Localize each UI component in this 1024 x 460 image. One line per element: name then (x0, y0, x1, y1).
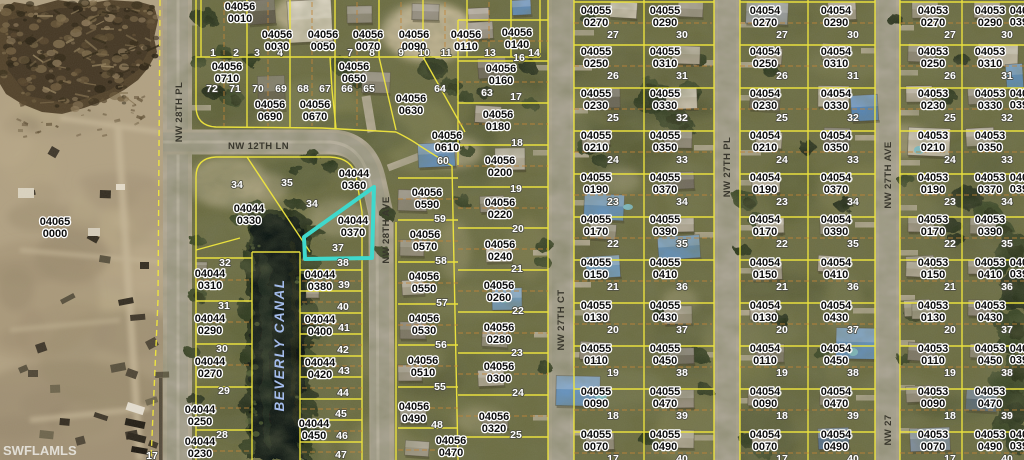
svg-text:0250: 0250 (584, 58, 608, 70)
svg-text:0290: 0290 (824, 17, 848, 29)
svg-text:04054: 04054 (750, 5, 781, 17)
svg-text:0450: 0450 (824, 355, 848, 367)
svg-text:0400: 0400 (308, 326, 332, 338)
svg-text:23: 23 (776, 196, 788, 208)
svg-text:0110: 0110 (454, 41, 478, 53)
svg-text:04055: 04055 (650, 214, 681, 226)
svg-text:66: 66 (341, 83, 353, 95)
svg-text:0010: 0010 (228, 13, 252, 25)
svg-text:04055: 04055 (581, 343, 612, 355)
svg-text:64: 64 (434, 83, 446, 95)
svg-text:04056: 04056 (485, 197, 516, 209)
svg-text:0490: 0490 (978, 441, 1002, 453)
svg-text:43: 43 (338, 365, 350, 377)
svg-text:0160: 0160 (489, 75, 513, 87)
svg-text:33: 33 (676, 154, 688, 166)
svg-text:3: 3 (254, 47, 260, 59)
svg-text:0530: 0530 (412, 325, 436, 337)
svg-text:04055: 04055 (581, 300, 612, 312)
svg-text:04044: 04044 (305, 357, 336, 369)
svg-text:04053: 04053 (975, 300, 1006, 312)
svg-text:34: 34 (847, 196, 859, 208)
svg-text:04053: 04053 (975, 5, 1006, 17)
svg-text:0270: 0270 (921, 17, 945, 29)
svg-text:0410: 0410 (978, 269, 1002, 281)
svg-text:0350: 0350 (978, 142, 1002, 154)
svg-text:34: 34 (676, 196, 688, 208)
svg-text:39: 39 (676, 410, 688, 422)
svg-text:04056: 04056 (485, 239, 516, 251)
svg-text:0450: 0450 (302, 430, 326, 442)
svg-text:0290: 0290 (978, 17, 1002, 29)
svg-text:31: 31 (218, 300, 230, 312)
svg-text:30: 30 (1001, 29, 1013, 41)
svg-text:NW 27: NW 27 (883, 414, 894, 445)
svg-text:04053: 04053 (975, 130, 1006, 142)
svg-text:NW 28TH AVE: NW 28TH AVE (381, 196, 392, 263)
svg-text:40: 40 (337, 301, 349, 313)
svg-text:14: 14 (528, 47, 540, 59)
svg-text:04055: 04055 (650, 386, 681, 398)
svg-text:0405: 0405 (1010, 343, 1024, 355)
svg-text:0570: 0570 (413, 241, 437, 253)
svg-text:0590: 0590 (415, 199, 439, 211)
svg-text:21: 21 (607, 281, 619, 293)
svg-text:04044: 04044 (339, 168, 370, 180)
svg-text:0610: 0610 (435, 142, 459, 154)
svg-text:0390: 0390 (653, 226, 677, 238)
svg-text:0210: 0210 (584, 142, 608, 154)
svg-text:26: 26 (944, 70, 956, 82)
svg-text:32: 32 (847, 112, 859, 124)
svg-text:38: 38 (847, 367, 859, 379)
svg-text:04053: 04053 (975, 386, 1006, 398)
svg-text:17: 17 (146, 450, 158, 460)
svg-text:0090: 0090 (921, 398, 945, 410)
svg-text:56: 56 (435, 339, 447, 351)
svg-text:10: 10 (418, 47, 430, 59)
svg-text:0330: 0330 (824, 100, 848, 112)
svg-text:04053: 04053 (918, 46, 949, 58)
svg-text:21: 21 (776, 281, 788, 293)
svg-text:04054: 04054 (821, 429, 852, 441)
svg-text:04056: 04056 (353, 29, 384, 41)
svg-text:0090: 0090 (584, 398, 608, 410)
svg-text:25: 25 (944, 112, 956, 124)
svg-text:0250: 0250 (753, 58, 777, 70)
svg-text:38: 38 (676, 367, 688, 379)
svg-text:04056: 04056 (399, 401, 430, 413)
svg-text:NW 27TH PL: NW 27TH PL (722, 137, 733, 197)
svg-text:04055: 04055 (581, 130, 612, 142)
svg-text:04053: 04053 (918, 300, 949, 312)
svg-text:30: 30 (847, 29, 859, 41)
svg-text:04054: 04054 (821, 88, 852, 100)
svg-text:0190: 0190 (921, 184, 945, 196)
svg-text:04054: 04054 (821, 343, 852, 355)
svg-text:04055: 04055 (650, 46, 681, 58)
svg-text:40: 40 (847, 453, 859, 460)
svg-text:0320: 0320 (482, 423, 506, 435)
svg-text:0230: 0230 (753, 100, 777, 112)
svg-text:04056: 04056 (432, 130, 463, 142)
svg-text:0390: 0390 (824, 226, 848, 238)
svg-text:34: 34 (231, 179, 243, 191)
svg-text:22: 22 (944, 238, 956, 250)
svg-text:SWFLAMLS: SWFLAMLS (3, 443, 77, 458)
svg-text:8: 8 (369, 47, 375, 59)
svg-text:22: 22 (607, 238, 619, 250)
svg-text:04056: 04056 (409, 271, 440, 283)
svg-text:NW 12TH LN: NW 12TH LN (228, 141, 289, 152)
svg-text:0290: 0290 (653, 17, 677, 29)
svg-text:0690: 0690 (258, 111, 282, 123)
svg-text:0250: 0250 (188, 416, 212, 428)
svg-text:46: 46 (336, 430, 348, 442)
svg-text:36: 36 (1001, 281, 1013, 293)
svg-text:04054: 04054 (750, 429, 781, 441)
svg-text:0430: 0430 (824, 312, 848, 324)
svg-text:36: 36 (847, 281, 859, 293)
svg-text:0470: 0470 (824, 398, 848, 410)
svg-text:04044: 04044 (185, 436, 216, 448)
svg-text:42: 42 (337, 344, 349, 356)
svg-text:0490: 0490 (824, 441, 848, 453)
svg-text:27: 27 (776, 29, 788, 41)
svg-text:0450: 0450 (653, 355, 677, 367)
svg-text:21: 21 (944, 281, 956, 293)
svg-text:27: 27 (607, 29, 619, 41)
svg-text:0430: 0430 (653, 312, 677, 324)
svg-text:7: 7 (347, 47, 353, 59)
svg-text:04056: 04056 (396, 93, 427, 105)
svg-text:35: 35 (847, 238, 859, 250)
svg-text:26: 26 (776, 70, 788, 82)
svg-text:0230: 0230 (188, 448, 212, 460)
svg-text:0370: 0370 (824, 184, 848, 196)
svg-text:0280: 0280 (487, 334, 511, 346)
svg-text:04053: 04053 (918, 429, 949, 441)
svg-text:0170: 0170 (584, 226, 608, 238)
svg-text:0310: 0310 (978, 58, 1002, 70)
svg-text:22: 22 (776, 238, 788, 250)
svg-text:04044: 04044 (195, 268, 226, 280)
svg-text:24: 24 (944, 154, 956, 166)
svg-text:04044: 04044 (234, 203, 265, 215)
svg-text:0090: 0090 (753, 398, 777, 410)
svg-text:0110: 0110 (584, 355, 608, 367)
svg-text:04054: 04054 (750, 257, 781, 269)
svg-text:04053: 04053 (975, 172, 1006, 184)
svg-text:04056: 04056 (300, 99, 331, 111)
svg-text:71: 71 (229, 83, 241, 95)
svg-text:04055: 04055 (581, 257, 612, 269)
svg-text:04056: 04056 (212, 61, 243, 73)
svg-text:04044: 04044 (195, 356, 226, 368)
svg-text:0410: 0410 (653, 269, 677, 281)
svg-text:60: 60 (437, 155, 449, 167)
svg-text:0470: 0470 (978, 398, 1002, 410)
svg-text:04054: 04054 (750, 172, 781, 184)
svg-text:25: 25 (607, 112, 619, 124)
svg-text:37: 37 (1001, 324, 1013, 336)
svg-text:33: 33 (1001, 154, 1013, 166)
svg-text:04056: 04056 (225, 1, 256, 13)
svg-text:0430: 0430 (978, 312, 1002, 324)
svg-text:0370: 0370 (341, 227, 365, 239)
svg-text:32: 32 (219, 257, 231, 269)
svg-text:23: 23 (607, 196, 619, 208)
svg-text:04056: 04056 (399, 29, 430, 41)
svg-text:20: 20 (776, 324, 788, 336)
svg-text:04053: 04053 (918, 5, 949, 17)
svg-text:0150: 0150 (584, 269, 608, 281)
svg-text:32: 32 (676, 112, 688, 124)
svg-text:57: 57 (436, 297, 448, 309)
svg-text:0390: 0390 (1010, 441, 1024, 453)
svg-text:0405: 0405 (1010, 429, 1024, 441)
svg-text:25: 25 (776, 112, 788, 124)
svg-text:24: 24 (607, 154, 619, 166)
svg-text:70: 70 (252, 83, 264, 95)
svg-text:04053: 04053 (918, 214, 949, 226)
svg-text:04056: 04056 (484, 280, 515, 292)
svg-text:0390: 0390 (1010, 269, 1024, 281)
svg-text:68: 68 (297, 83, 309, 95)
svg-text:04044: 04044 (305, 269, 336, 281)
svg-text:04055: 04055 (581, 429, 612, 441)
svg-text:67: 67 (319, 83, 331, 95)
svg-text:31: 31 (847, 70, 859, 82)
svg-text:0330: 0330 (653, 100, 677, 112)
svg-text:0405: 0405 (1010, 5, 1024, 17)
svg-text:04054: 04054 (821, 130, 852, 142)
svg-text:72: 72 (206, 83, 218, 95)
svg-text:23: 23 (944, 196, 956, 208)
svg-text:0330: 0330 (978, 100, 1002, 112)
svg-text:04055: 04055 (650, 343, 681, 355)
svg-text:20: 20 (512, 223, 524, 235)
svg-text:39: 39 (338, 279, 350, 291)
svg-text:24: 24 (512, 387, 524, 399)
svg-text:22: 22 (512, 305, 524, 317)
svg-text:33: 33 (847, 154, 859, 166)
svg-text:0330: 0330 (237, 215, 261, 227)
svg-text:30: 30 (676, 29, 688, 41)
svg-text:0390: 0390 (978, 226, 1002, 238)
svg-text:0130: 0130 (921, 312, 945, 324)
svg-text:0130: 0130 (753, 312, 777, 324)
svg-text:NW 28TH PL: NW 28TH PL (174, 82, 185, 142)
svg-text:0405: 0405 (1010, 257, 1024, 269)
svg-text:0510: 0510 (411, 367, 435, 379)
svg-text:04056: 04056 (479, 411, 510, 423)
svg-text:0070: 0070 (584, 441, 608, 453)
svg-text:48: 48 (431, 419, 443, 431)
svg-text:0405: 0405 (1010, 88, 1024, 100)
svg-text:65: 65 (363, 83, 375, 95)
svg-text:20: 20 (607, 324, 619, 336)
svg-text:23: 23 (511, 347, 523, 359)
svg-text:26: 26 (607, 70, 619, 82)
svg-text:04054: 04054 (821, 172, 852, 184)
svg-text:04055: 04055 (581, 88, 612, 100)
svg-text:04055: 04055 (650, 300, 681, 312)
svg-text:39: 39 (1001, 410, 1013, 422)
svg-text:0260: 0260 (487, 292, 511, 304)
svg-text:04055: 04055 (650, 257, 681, 269)
svg-text:04044: 04044 (305, 314, 336, 326)
svg-text:0250: 0250 (921, 58, 945, 70)
svg-text:0630: 0630 (399, 105, 423, 117)
svg-text:04053: 04053 (918, 130, 949, 142)
svg-text:04044: 04044 (195, 313, 226, 325)
svg-text:04055: 04055 (581, 386, 612, 398)
svg-text:35: 35 (281, 177, 293, 189)
svg-text:38: 38 (337, 257, 349, 269)
svg-text:29: 29 (218, 385, 230, 397)
svg-text:04054: 04054 (821, 214, 852, 226)
svg-text:04055: 04055 (650, 172, 681, 184)
svg-text:20: 20 (944, 324, 956, 336)
svg-text:0210: 0210 (921, 142, 945, 154)
svg-text:0210: 0210 (753, 142, 777, 154)
svg-text:04055: 04055 (650, 5, 681, 17)
svg-text:04054: 04054 (821, 5, 852, 17)
svg-text:04055: 04055 (581, 172, 612, 184)
svg-text:34: 34 (306, 198, 318, 210)
svg-text:04055: 04055 (650, 130, 681, 142)
svg-text:04053: 04053 (975, 88, 1006, 100)
svg-text:44: 44 (337, 387, 349, 399)
svg-text:0110: 0110 (921, 355, 945, 367)
svg-text:0270: 0270 (584, 17, 608, 29)
svg-text:0405: 0405 (1010, 172, 1024, 184)
svg-text:32: 32 (1001, 112, 1013, 124)
svg-text:04056: 04056 (412, 187, 443, 199)
svg-text:0470: 0470 (439, 447, 463, 459)
svg-text:04056: 04056 (485, 155, 516, 167)
svg-text:28: 28 (216, 429, 228, 441)
svg-text:18: 18 (944, 410, 956, 422)
svg-text:16: 16 (513, 52, 525, 64)
svg-text:40: 40 (676, 453, 688, 460)
svg-text:30: 30 (216, 343, 228, 355)
svg-text:04056: 04056 (308, 29, 339, 41)
svg-text:04053: 04053 (975, 46, 1006, 58)
svg-text:0350: 0350 (824, 142, 848, 154)
svg-text:0490: 0490 (653, 441, 677, 453)
svg-text:04056: 04056 (255, 99, 286, 111)
svg-text:0240: 0240 (488, 251, 512, 263)
svg-text:63: 63 (481, 87, 493, 99)
svg-text:0150: 0150 (921, 269, 945, 281)
svg-text:19: 19 (607, 367, 619, 379)
svg-text:18: 18 (776, 410, 788, 422)
svg-text:0050: 0050 (311, 41, 335, 53)
svg-text:0200: 0200 (488, 167, 512, 179)
svg-text:04044: 04044 (299, 418, 330, 430)
svg-text:04054: 04054 (821, 46, 852, 58)
svg-text:0070: 0070 (921, 441, 945, 453)
svg-text:04056: 04056 (409, 313, 440, 325)
svg-text:13: 13 (484, 47, 496, 59)
svg-text:1: 1 (210, 47, 216, 59)
svg-text:04055: 04055 (650, 88, 681, 100)
svg-text:04056: 04056 (436, 435, 467, 447)
svg-text:0140: 0140 (505, 39, 529, 51)
svg-text:0390: 0390 (1010, 17, 1024, 29)
svg-text:17: 17 (944, 453, 956, 460)
svg-text:04056: 04056 (339, 61, 370, 73)
svg-text:04053: 04053 (918, 386, 949, 398)
svg-text:24: 24 (776, 154, 788, 166)
svg-text:04054: 04054 (821, 386, 852, 398)
svg-text:0270: 0270 (753, 17, 777, 29)
svg-text:0410: 0410 (824, 269, 848, 281)
svg-text:04054: 04054 (750, 88, 781, 100)
svg-text:NW 27TH CT: NW 27TH CT (556, 290, 567, 351)
svg-text:4: 4 (277, 47, 283, 59)
svg-text:17: 17 (607, 453, 619, 460)
svg-text:41: 41 (338, 322, 350, 334)
svg-text:04055: 04055 (581, 46, 612, 58)
svg-text:0420: 0420 (308, 369, 332, 381)
svg-text:04056: 04056 (484, 322, 515, 334)
svg-text:04054: 04054 (750, 386, 781, 398)
svg-text:04055: 04055 (581, 214, 612, 226)
svg-text:17: 17 (510, 91, 522, 103)
svg-text:36: 36 (676, 281, 688, 293)
svg-text:0190: 0190 (584, 184, 608, 196)
svg-text:18: 18 (607, 410, 619, 422)
svg-text:0380: 0380 (308, 281, 332, 293)
svg-text:37: 37 (332, 242, 344, 254)
svg-text:34: 34 (1001, 196, 1013, 208)
svg-text:35: 35 (676, 238, 688, 250)
svg-text:11: 11 (440, 47, 451, 59)
svg-text:04044: 04044 (338, 215, 369, 227)
svg-text:0470: 0470 (653, 398, 677, 410)
svg-text:0550: 0550 (412, 283, 436, 295)
svg-text:0150: 0150 (753, 269, 777, 281)
svg-text:04056: 04056 (410, 229, 441, 241)
svg-text:0390: 0390 (1010, 100, 1024, 112)
svg-text:0310: 0310 (824, 58, 848, 70)
svg-text:0360: 0360 (342, 180, 366, 192)
svg-text:0190: 0190 (753, 184, 777, 196)
svg-text:0180: 0180 (486, 121, 510, 133)
svg-text:59: 59 (434, 213, 446, 225)
svg-text:69: 69 (275, 83, 287, 95)
svg-text:04056: 04056 (262, 29, 293, 41)
svg-text:0350: 0350 (653, 142, 677, 154)
svg-text:04053: 04053 (975, 214, 1006, 226)
svg-text:39: 39 (847, 410, 859, 422)
svg-text:04054: 04054 (750, 214, 781, 226)
svg-text:0370: 0370 (653, 184, 677, 196)
svg-text:04056: 04056 (408, 355, 439, 367)
svg-text:0130: 0130 (584, 312, 608, 324)
svg-text:04055: 04055 (581, 5, 612, 17)
svg-text:21: 21 (511, 263, 523, 275)
svg-text:0000: 0000 (43, 228, 67, 240)
svg-text:04065: 04065 (40, 216, 71, 228)
svg-text:45: 45 (335, 408, 347, 420)
svg-text:04054: 04054 (750, 300, 781, 312)
svg-text:04053: 04053 (975, 343, 1006, 355)
svg-text:04053: 04053 (975, 429, 1006, 441)
